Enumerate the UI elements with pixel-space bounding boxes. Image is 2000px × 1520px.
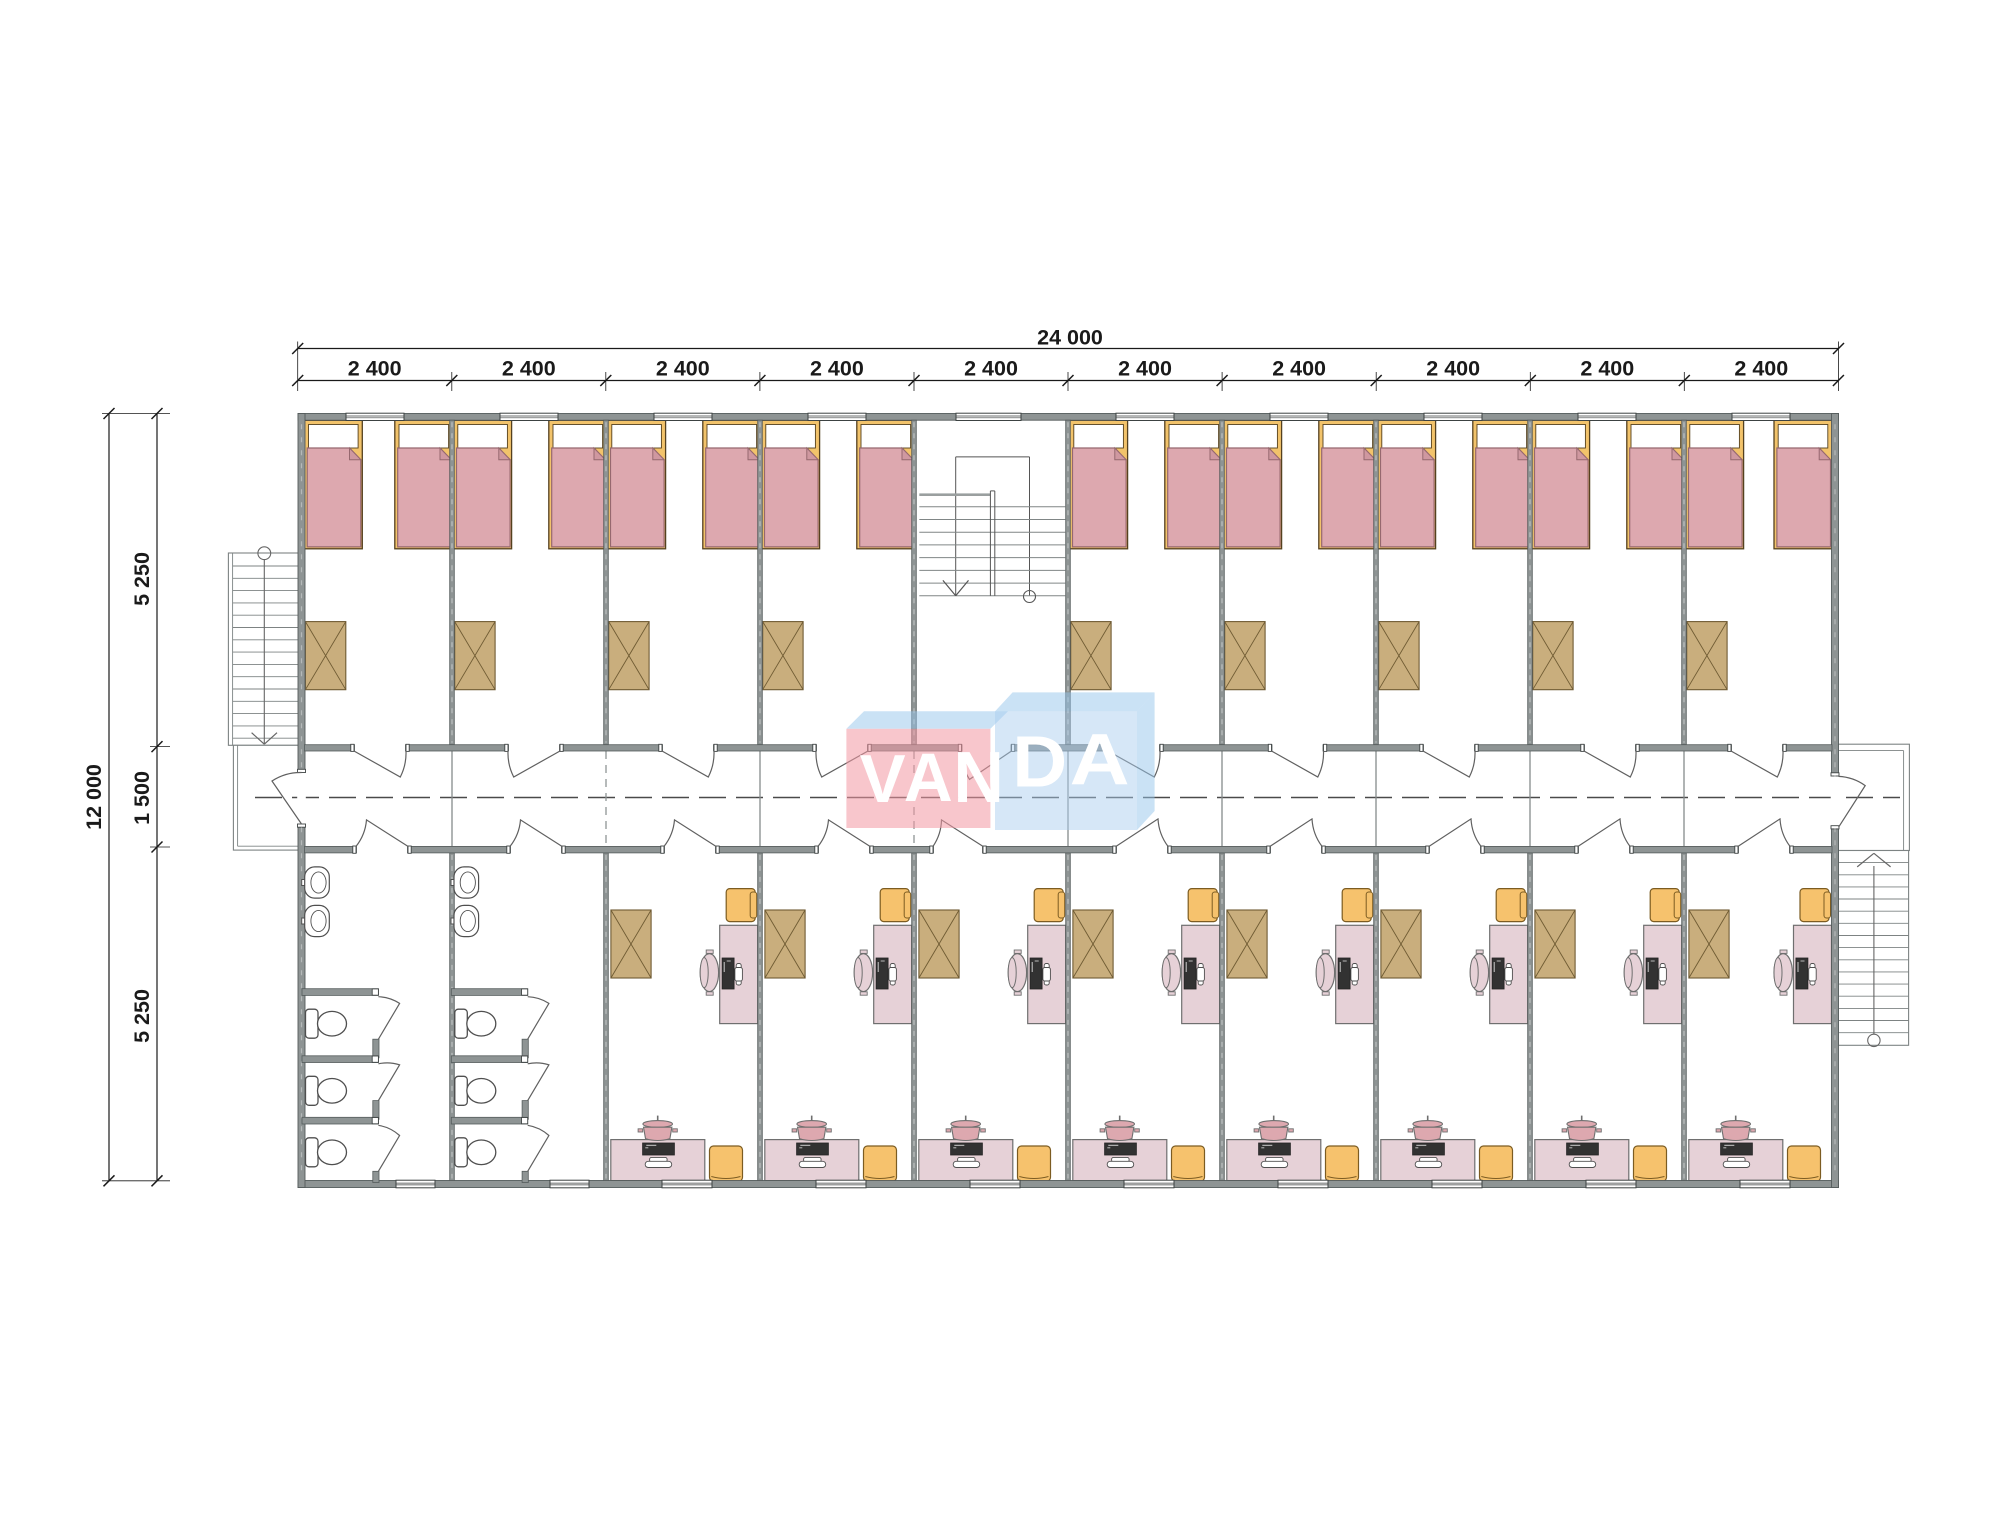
svg-text:2 400: 2 400 <box>1272 357 1326 381</box>
svg-text:A: A <box>904 739 953 816</box>
svg-text:N: N <box>953 738 1004 818</box>
svg-text:5 250: 5 250 <box>130 552 154 606</box>
svg-text:5 250: 5 250 <box>130 989 154 1043</box>
svg-text:2 400: 2 400 <box>656 357 710 381</box>
svg-text:24 000: 24 000 <box>1037 326 1103 350</box>
svg-text:2 400: 2 400 <box>1426 357 1480 381</box>
svg-text:V: V <box>860 741 906 817</box>
svg-text:2 400: 2 400 <box>502 357 556 381</box>
svg-text:2 400: 2 400 <box>810 357 864 381</box>
svg-text:A: A <box>1070 720 1130 800</box>
svg-text:12 000: 12 000 <box>82 764 106 830</box>
svg-text:2 400: 2 400 <box>1580 357 1634 381</box>
svg-text:2 400: 2 400 <box>1118 357 1172 381</box>
svg-text:2 400: 2 400 <box>1734 357 1788 381</box>
svg-text:2 400: 2 400 <box>348 357 402 381</box>
svg-text:1 500: 1 500 <box>130 771 154 825</box>
svg-text:2 400: 2 400 <box>964 357 1018 381</box>
svg-text:D: D <box>1012 722 1067 802</box>
